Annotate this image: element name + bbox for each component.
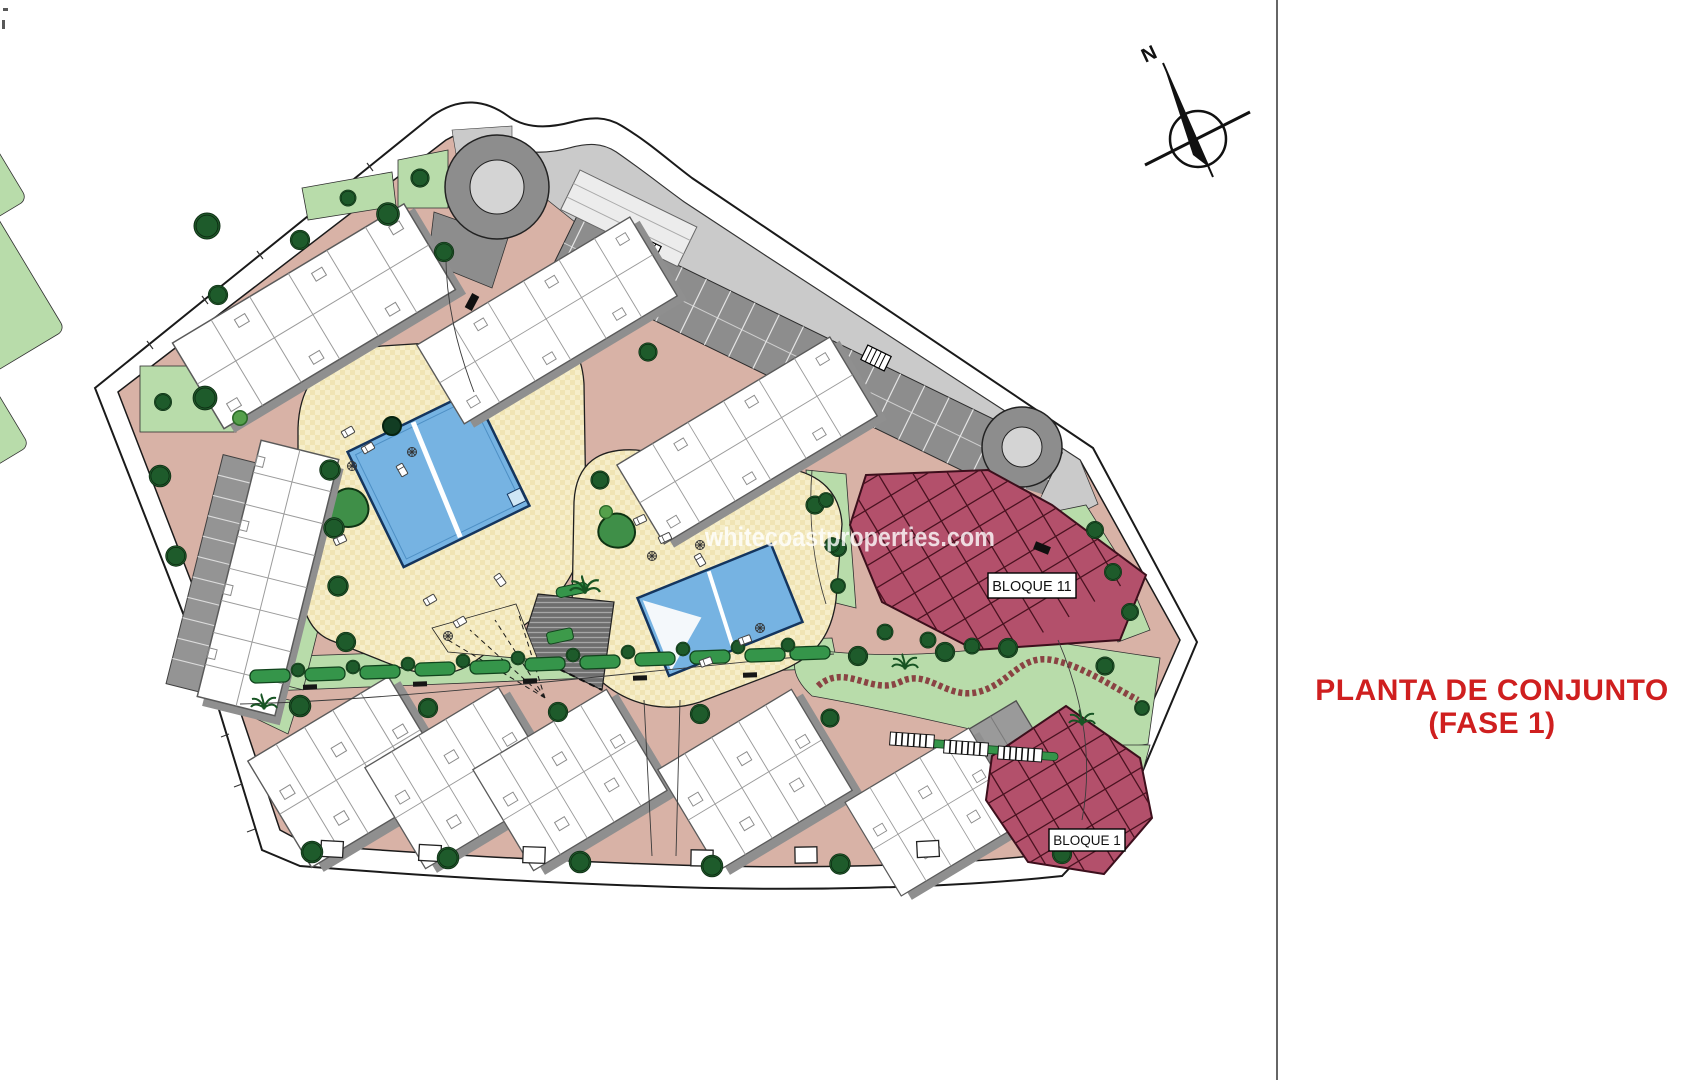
site-plan-page: BLOQUE 11 BLOQUE 1 whitecoastproperties.… bbox=[0, 0, 1700, 1080]
corner-marks bbox=[2, 8, 8, 29]
bloque-1-label-text: BLOQUE 1 bbox=[1053, 833, 1121, 848]
bloque-11-label-text: BLOQUE 11 bbox=[992, 579, 1072, 595]
north-compass: N bbox=[1138, 42, 1250, 177]
watermark-text: whitecoastproperties.com bbox=[704, 522, 995, 552]
bloque-1-label: BLOQUE 1 bbox=[1049, 829, 1125, 851]
roundabout-northwest bbox=[445, 135, 549, 239]
spa-pool bbox=[383, 417, 401, 435]
bloque-11-label: BLOQUE 11 bbox=[988, 573, 1076, 598]
site-plan: BLOQUE 11 BLOQUE 1 whitecoastproperties.… bbox=[0, 0, 1700, 1080]
title-block: PLANTA DE CONJUNTO (FASE 1) bbox=[1292, 674, 1692, 740]
drawing-title-line1: PLANTA DE CONJUNTO bbox=[1292, 674, 1692, 707]
north-label: N bbox=[1138, 42, 1160, 68]
drawing-title-line2: (FASE 1) bbox=[1292, 707, 1692, 740]
